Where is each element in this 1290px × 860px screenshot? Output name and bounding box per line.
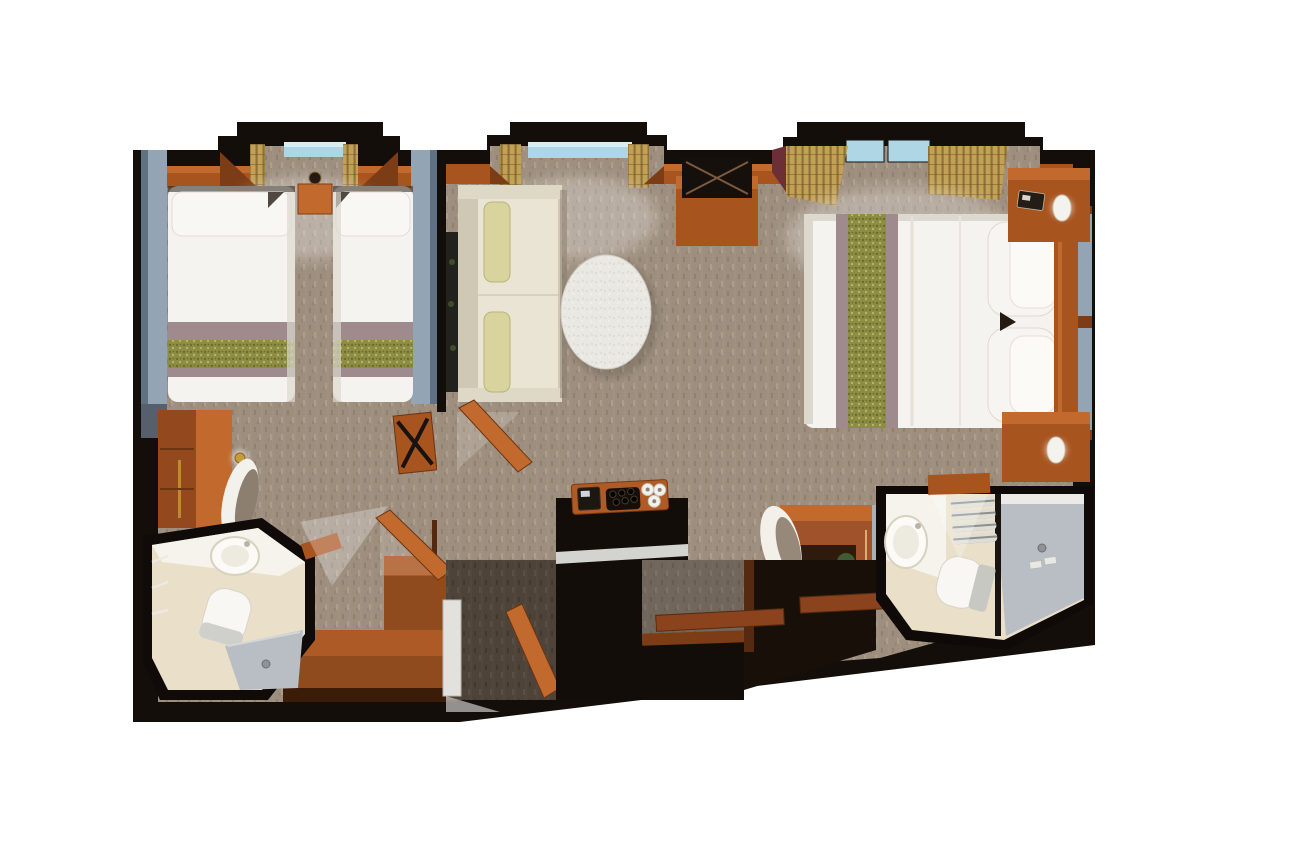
floor-plan-figure [0, 0, 1290, 860]
shower-drain-icon [262, 660, 270, 668]
bed-runner [848, 214, 886, 428]
nightstand-top [1008, 168, 1090, 242]
floor-plan-svg [0, 0, 1290, 860]
pillow [336, 192, 410, 236]
twin-bed-right [333, 186, 413, 402]
faucet-icon [915, 523, 921, 529]
wall-shelf [446, 164, 490, 184]
espresso-tray [571, 480, 668, 515]
shower-drain-icon [1038, 544, 1046, 552]
twin-bedroom [141, 142, 457, 702]
phone [1017, 190, 1045, 210]
curtain-right-icon [343, 144, 358, 186]
connecting-doorway [437, 412, 457, 575]
sofa [458, 185, 567, 402]
curtain-right-icon [628, 144, 649, 188]
luggage-rack [393, 412, 437, 474]
faucet-icon [244, 541, 250, 547]
bathroom-door [928, 473, 991, 495]
window-glass [888, 140, 930, 162]
wall-sconce-icon [309, 172, 321, 184]
coffee-table [561, 255, 651, 369]
bedside-lamp-icon [1047, 437, 1065, 463]
curtain-left-icon [250, 144, 265, 186]
throw-pillow [484, 312, 510, 392]
bed-runner [168, 340, 295, 368]
bedside-lamp-icon [1053, 195, 1071, 221]
mirror-panel [446, 232, 458, 392]
nightstand-bottom [1002, 412, 1090, 482]
tv-cabinet [676, 158, 758, 246]
shower-partition [995, 494, 1001, 636]
throw-pillow [484, 202, 510, 282]
entry-door [443, 600, 461, 696]
twin-nightstand [298, 184, 332, 214]
espresso-machine-icon [577, 487, 600, 510]
dresser [158, 410, 232, 528]
twin-bed-left [168, 186, 295, 402]
window-glass [846, 140, 884, 162]
bed-runner [333, 340, 413, 368]
